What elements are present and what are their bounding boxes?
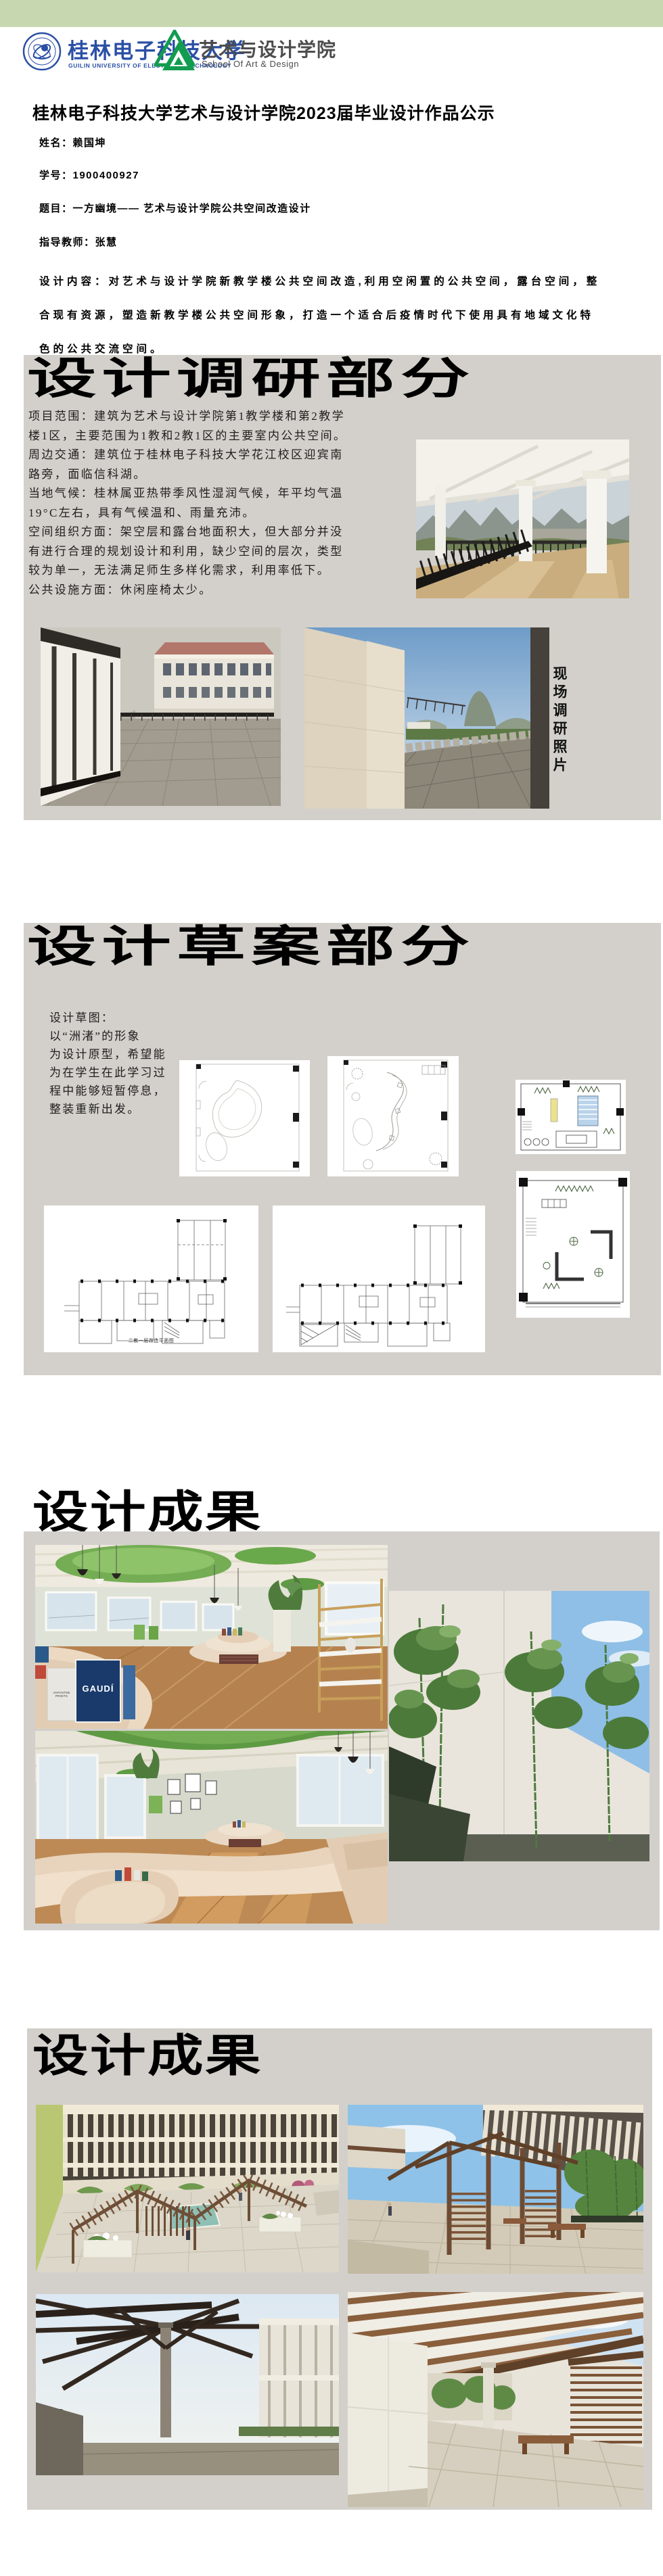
page-title: 桂林电子科技大学艺术与设计学院2023届毕业设计作品公示 [32,100,495,124]
school-name-en: School Of Art & Design [202,59,299,69]
book-cover-label-small: JAPANTSE PRINTS [48,1691,75,1698]
field-design-description: 设计内容：对艺术与设计学院新教学楼公共空间改造,利用空闲置的公共空间，露台空间，… [39,265,649,366]
results2-heading: 设计成果 [32,2032,262,2079]
building-plan-1: 二教一层改造平面图 [44,1206,258,1352]
top-accent-bar [0,0,663,27]
research-heading: 设计调研部分 [27,356,475,402]
school-logo-icon [154,30,195,73]
site-photo-terrace-2 [304,627,549,809]
render-pergola-walkway [348,2292,643,2507]
draft-body-text: 设计草图： 以“洲渚”的形象 为设计原型，希望能 为在学生在此学习过 程中能够短… [49,1009,185,1118]
site-photo-terrace-1 [41,627,281,806]
cad-plan-2 [516,1171,630,1318]
render-library-1: GAUDÍ JAPANTSE PRINTS [35,1545,388,1729]
render-pergola-terrace [348,2105,643,2274]
building-plan-2 [273,1206,485,1352]
draft-heading: 设计草案部分 [27,924,475,970]
university-emblem-icon [22,32,62,71]
field-student-id: 学号：1900400927 [39,168,139,182]
results1-heading: 设计成果 [32,1489,262,1535]
sketch-plan-1 [179,1060,310,1176]
site-photos-label: 现场调研照片 [549,666,570,776]
field-name: 姓名：赖国坤 [39,135,106,149]
poster-page: 桂林电子科技大学 GUILIN UNIVERSITY OF ELECTRONIC… [0,0,663,2576]
cad-plan-1 [516,1080,626,1154]
render-bamboo-court [389,1591,649,1861]
field-advisor: 指导教师：张慧 [39,235,118,249]
render-pergola-dark [36,2294,339,2475]
school-name-cn: 艺术与设计学院 [199,35,336,62]
book-cover-label: GAUDÍ [77,1684,119,1694]
plan-caption: 二教一层改造平面图 [44,1337,258,1344]
research-body-text: 项目范围：建筑为艺术与设计学院第1教学楼和第2教学 楼1区，主要范围为1教和2教… [28,407,370,600]
sketch-plan-2 [327,1056,459,1176]
site-photo-corridor [416,439,629,598]
render-library-2 [35,1731,388,1924]
field-topic: 题目：一方幽境—— 艺术与设计学院公共空间改造设计 [39,201,311,215]
render-courtyard-aerial [36,2105,339,2272]
